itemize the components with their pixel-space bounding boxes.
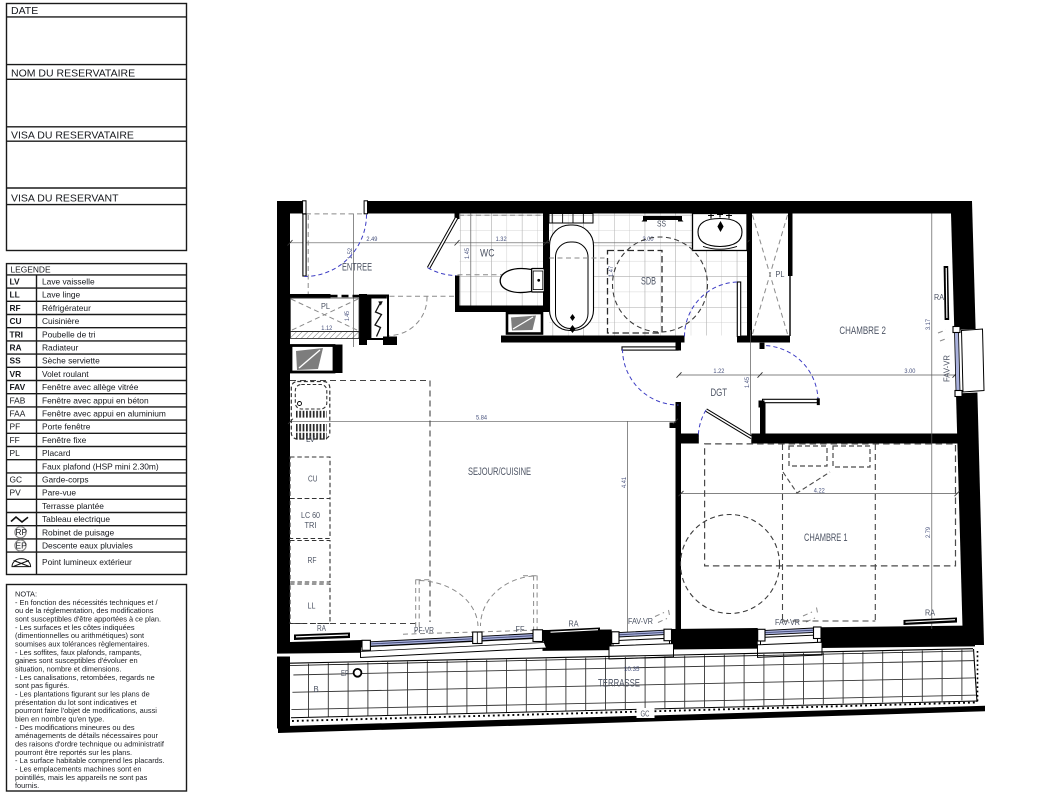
svg-text:5.84: 5.84 [476,415,487,422]
svg-text:Cuisinière: Cuisinière [42,316,80,326]
svg-text:TERRASSE: TERRASSE [598,678,640,690]
svg-text:PF: PF [10,422,21,432]
svg-text:CU: CU [308,475,318,484]
svg-text:Fenêtre avec appui en béton: Fenêtre avec appui en béton [42,395,149,405]
svg-text:LEGENDE: LEGENDE [11,264,51,274]
svg-text:SDB: SDB [641,276,656,288]
svg-text:GC: GC [641,710,650,719]
svg-text:PL: PL [10,448,21,458]
svg-text:Volet roulant: Volet roulant [42,369,89,379]
svg-text:Pare-vue: Pare-vue [42,488,76,498]
svg-text:VISA DU RESERVATAIRE: VISA DU RESERVATAIRE [11,130,134,142]
svg-text:RF: RF [10,303,21,313]
svg-text:SS: SS [657,220,666,229]
svg-text:LV: LV [306,435,316,444]
svg-text:1.45: 1.45 [464,248,471,259]
svg-text:1.45: 1.45 [744,377,751,388]
svg-text:PL: PL [776,270,786,279]
svg-text:1.12: 1.12 [321,325,332,332]
svg-text:1.32: 1.32 [496,236,507,243]
svg-text:CU: CU [10,316,22,326]
svg-text:EP: EP [16,540,28,550]
svg-text:RA: RA [317,624,327,633]
svg-text:SEJOUR/CUISINE: SEJOUR/CUISINE [468,466,531,478]
svg-text:SS: SS [10,356,22,366]
svg-text:ENTREE: ENTREE [342,262,372,274]
svg-text:RA: RA [10,343,22,353]
svg-text:Réfrigérateur: Réfrigérateur [42,303,91,313]
svg-text:10.35: 10.35 [624,666,640,673]
svg-text:TRI: TRI [10,329,24,339]
svg-text:RP: RP [16,527,28,537]
svg-text:3.17: 3.17 [925,319,932,330]
svg-text:RA: RA [934,293,945,302]
svg-text:TRI: TRI [305,521,317,530]
svg-text:FAB: FAB [10,395,26,405]
svg-text:DATE: DATE [11,5,38,17]
svg-text:2.79: 2.79 [925,527,932,538]
svg-text:Point lumineux extérieur: Point lumineux extérieur [42,557,132,567]
svg-text:2.49: 2.49 [366,236,377,243]
svg-text:Tableau electrique: Tableau electrique [42,514,110,524]
svg-text:VISA DU RESERVANT: VISA DU RESERVANT [11,193,119,205]
svg-text:VR: VR [10,369,22,379]
svg-text:LL: LL [10,290,20,300]
svg-text:PF-VR: PF-VR [414,626,434,635]
svg-text:Porte fenêtre: Porte fenêtre [42,422,91,432]
svg-text:RA: RA [925,609,936,618]
svg-text:1.52: 1.52 [347,248,354,259]
svg-text:Fenêtre avec appui en aluminiu: Fenêtre avec appui en aluminium [42,409,166,419]
svg-text:Lave linge: Lave linge [42,290,81,300]
svg-text:B: B [314,685,319,694]
svg-text:FAV-VR: FAV-VR [775,618,800,627]
svg-text:1.22: 1.22 [713,368,724,375]
svg-text:WC: WC [480,248,495,260]
svg-text:Faux plafond (HSP mini 2.30m): Faux plafond (HSP mini 2.30m) [42,461,159,471]
svg-text:FF: FF [516,625,525,634]
svg-text:CHAMBRE 1: CHAMBRE 1 [804,532,848,544]
svg-text:Lave vaisselle: Lave vaisselle [42,277,95,287]
svg-text:Robinet de puisage: Robinet de puisage [42,527,115,537]
svg-text:FAA: FAA [10,409,26,419]
svg-text:NOM DU RESERVATAIRE: NOM DU RESERVATAIRE [11,68,135,80]
svg-text:Radiateur: Radiateur [42,343,79,353]
svg-text:1.45: 1.45 [344,311,351,321]
svg-text:Garde-corps: Garde-corps [42,475,89,485]
svg-text:Sèche serviette: Sèche serviette [42,356,100,366]
svg-text:Fenêtre fixe: Fenêtre fixe [42,435,87,445]
svg-text:LC 60: LC 60 [301,511,321,520]
svg-text:4.22: 4.22 [814,487,825,494]
svg-text:3.00: 3.00 [904,368,915,375]
svg-text:FAV-VR: FAV-VR [628,617,653,626]
svg-text:DGT: DGT [711,387,728,399]
svg-text:Fenêtre avec allège vitrée: Fenêtre avec allège vitrée [42,382,139,392]
svg-text:RA: RA [569,620,580,629]
svg-text:PV: PV [10,488,22,498]
svg-text:CHAMBRE 2: CHAMBRE 2 [839,325,886,337]
svg-text:4.41: 4.41 [621,477,628,488]
svg-text:Terrasse plantée: Terrasse plantée [42,501,104,511]
svg-text:PL: PL [321,302,331,311]
svg-text:LV: LV [10,277,20,287]
svg-text:FF: FF [10,435,20,445]
svg-text:Poubelle de tri: Poubelle de tri [42,329,96,339]
svg-text:Descente eaux pluviales: Descente eaux pluviales [42,541,133,551]
svg-text:RF: RF [308,556,317,565]
svg-text:fournis.: fournis. [15,781,39,790]
svg-text:Placard: Placard [42,448,71,458]
svg-text:LL: LL [308,602,317,611]
svg-text:EP: EP [341,669,349,678]
svg-text:FAV-VR: FAV-VR [943,355,952,382]
svg-text:GC: GC [10,475,23,485]
svg-text:FAV: FAV [10,382,26,392]
